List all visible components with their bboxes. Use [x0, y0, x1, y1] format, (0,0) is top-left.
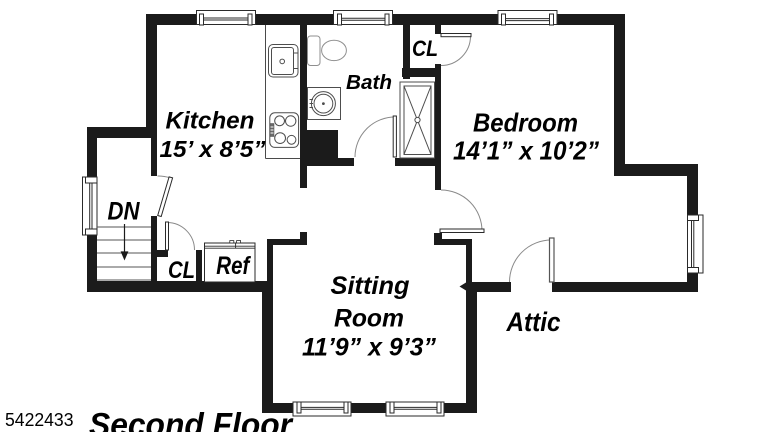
svg-text:14’1” x 10’2”: 14’1” x 10’2”: [453, 135, 599, 165]
svg-text:Kitchen: Kitchen: [166, 108, 255, 135]
svg-text:11’9” x 9’3”: 11’9” x 9’3”: [302, 334, 436, 362]
svg-text:DN: DN: [108, 197, 141, 225]
svg-text:5422433: 5422433: [5, 409, 74, 430]
svg-text:Ref: Ref: [216, 252, 251, 280]
svg-text:Room: Room: [334, 304, 404, 332]
svg-text:Second Floor: Second Floor: [89, 406, 294, 432]
svg-text:CL: CL: [168, 257, 195, 284]
svg-text:Bedroom: Bedroom: [473, 107, 578, 137]
svg-text:Bath: Bath: [346, 72, 392, 94]
svg-text:CL: CL: [412, 36, 438, 61]
svg-text:Attic: Attic: [506, 307, 561, 337]
svg-text:Sitting: Sitting: [331, 272, 410, 300]
svg-text:15’ x 8’5”: 15’ x 8’5”: [160, 136, 267, 162]
